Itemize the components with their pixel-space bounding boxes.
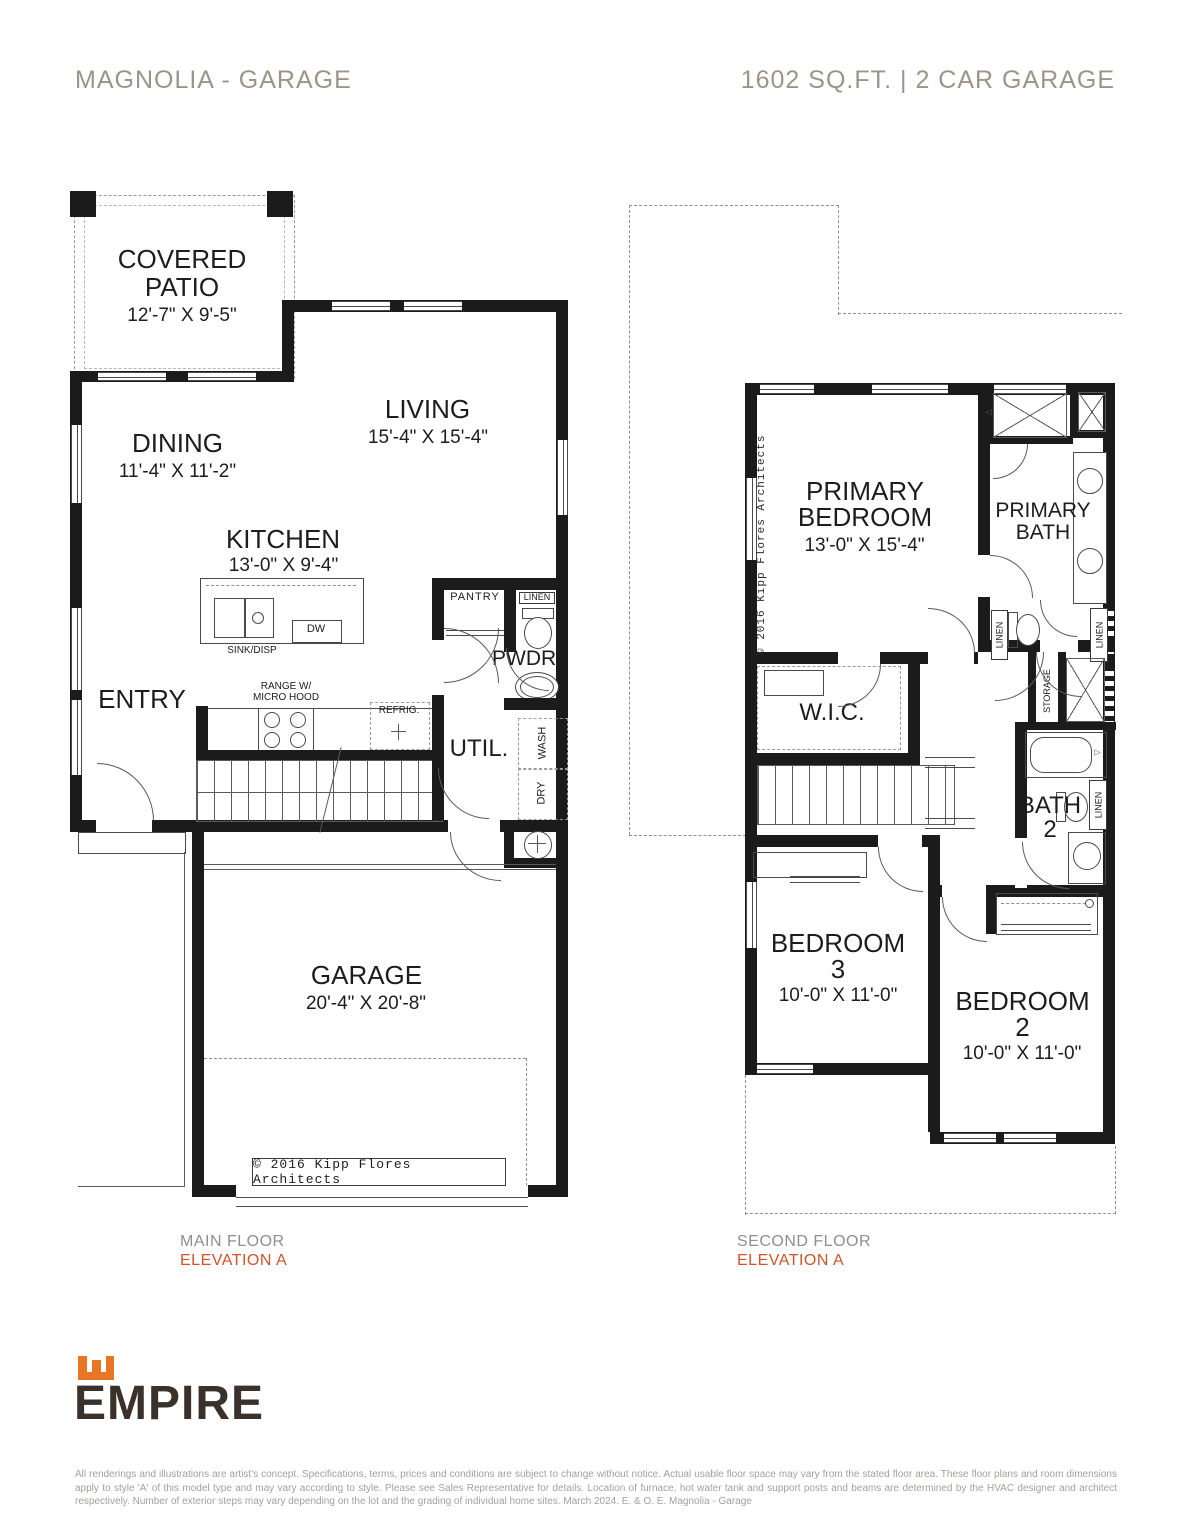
window xyxy=(557,440,568,515)
sink-icon xyxy=(1077,468,1103,494)
door-knob-icon xyxy=(1085,899,1094,908)
wall xyxy=(928,835,940,1132)
door-arc xyxy=(97,763,154,821)
room-label-primary-bedroom2: BEDROOM xyxy=(775,504,955,532)
room-label-dining: DINING xyxy=(110,430,245,458)
caption-main-floor: MAIN FLOOR xyxy=(180,1233,285,1251)
hatched-wall xyxy=(1104,666,1114,722)
window xyxy=(872,384,948,394)
floorplan-page: MAGNOLIA - GARAGE 1602 SQ.FT. | 2 CAR GA… xyxy=(0,0,1187,1536)
copyright-stamp: © 2016 Kipp Flores Architects xyxy=(252,1158,506,1186)
patio-post xyxy=(70,191,96,217)
wall xyxy=(432,578,568,590)
room-label-pantry: PANTRY xyxy=(446,592,504,604)
faucet-icon: ▽ xyxy=(1093,749,1102,755)
burner-icon xyxy=(264,732,280,748)
porch-step xyxy=(78,832,186,854)
water-heater-mark xyxy=(528,843,546,844)
stair-rail xyxy=(925,818,975,829)
room-label-kitchen: KITCHEN xyxy=(208,526,358,554)
door-opening xyxy=(96,820,152,832)
room-dims-kitchen: 13'-0" X 9'-4" xyxy=(206,556,361,576)
garage-slab-line xyxy=(204,864,556,865)
room-label-living: LIVING xyxy=(350,396,505,424)
window xyxy=(188,372,256,381)
room-dims-bedroom2: 10'-0" X 11'-0" xyxy=(941,1044,1103,1064)
closet-door xyxy=(790,876,860,883)
faucet-icon: ▽ xyxy=(985,409,994,415)
porch-line xyxy=(78,1186,185,1187)
patio-post xyxy=(267,191,293,217)
room-dims-primary-bedroom: 13'-0" X 15'-4" xyxy=(777,536,952,556)
caption-main-elevation: ELEVATION A xyxy=(180,1252,287,1270)
room-dims-covered-patio: 12'-7" X 9'-5" xyxy=(102,306,262,326)
toilet-icon xyxy=(524,617,552,649)
window xyxy=(404,301,462,311)
door-arc xyxy=(928,608,975,653)
door-opening xyxy=(432,640,444,695)
room-label-bedroom2-num: 2 xyxy=(945,1014,1100,1042)
plan-specs: 1602 SQ.FT. | 2 CAR GARAGE xyxy=(700,66,1115,95)
stair-rail xyxy=(925,757,975,768)
fridge-mark xyxy=(398,724,399,740)
wall xyxy=(282,300,294,382)
closet-label-linen: LINEN xyxy=(1089,780,1107,830)
water-heater-mark xyxy=(537,835,538,853)
stairs xyxy=(196,760,443,822)
door-arc xyxy=(1040,600,1077,637)
copyright-vertical: © 2016 Kipp Flores Architects xyxy=(756,435,768,655)
room-dims-dining: 11'-4" X 11'-2" xyxy=(95,462,260,482)
washer-label: WASH xyxy=(518,718,566,768)
roof-outline xyxy=(629,835,746,836)
wall xyxy=(504,858,568,868)
fridge-label: REFRIG. xyxy=(371,706,427,717)
door-arc xyxy=(993,444,1028,479)
wall xyxy=(996,1132,1004,1144)
water-heater-icon xyxy=(524,831,552,859)
door-arc xyxy=(990,555,1033,598)
closet-icon xyxy=(1078,392,1106,432)
brand-logo: EMPIRE xyxy=(74,1376,264,1431)
door-opening xyxy=(942,885,986,897)
roof-outline xyxy=(745,1213,1116,1214)
room-label-utility: UTIL. xyxy=(444,736,514,761)
roof-outline xyxy=(1115,1146,1116,1214)
garage-dashed-line xyxy=(204,1058,526,1059)
stairs xyxy=(757,765,955,825)
sink-label: SINK/DISP xyxy=(214,646,290,657)
closet-label-linen: LINEN xyxy=(1090,608,1108,662)
burner-icon xyxy=(290,732,306,748)
window xyxy=(71,425,82,503)
dishwasher-label: DW xyxy=(292,624,340,636)
burner-icon xyxy=(264,712,280,728)
room-dims-living: 15'-4" X 15'-4" xyxy=(338,428,518,448)
window xyxy=(760,384,814,394)
window xyxy=(757,1064,813,1074)
closet xyxy=(753,852,867,878)
roof-outline xyxy=(838,313,1122,314)
window xyxy=(98,372,166,381)
room-dims-garage: 20'-4" X 20'-8" xyxy=(286,994,446,1014)
shower-icon xyxy=(993,393,1067,438)
door-arc xyxy=(438,768,489,819)
range-label: RANGE W/ xyxy=(234,682,338,693)
fridge-mark xyxy=(391,731,406,732)
room-label-primary-bath: PRIMARY xyxy=(983,500,1103,522)
window xyxy=(746,882,757,948)
sink-icon xyxy=(1077,548,1103,574)
wall xyxy=(986,888,996,934)
room-label-bath2-num: 2 xyxy=(1012,817,1088,842)
stair-rail xyxy=(196,792,441,793)
door-arc xyxy=(942,897,987,942)
door-opening xyxy=(878,835,922,847)
toilet-icon xyxy=(1016,614,1040,646)
wall xyxy=(908,664,920,765)
door-arc xyxy=(450,832,501,881)
room-label-primary-bath2: BATH xyxy=(983,522,1103,544)
caption-second-elevation: ELEVATION A xyxy=(737,1252,844,1270)
sink-icon xyxy=(1073,842,1101,870)
door-opening xyxy=(448,820,500,832)
dryer-label: DRY xyxy=(518,768,566,818)
tub-icon xyxy=(1030,737,1092,773)
window xyxy=(71,700,82,775)
caption-second-floor: SECOND FLOOR xyxy=(737,1233,871,1251)
room-label-covered-patio: COVERED xyxy=(112,246,252,274)
roof-outline xyxy=(838,205,839,315)
garage-door xyxy=(236,1197,528,1207)
disclaimer-text: All renderings and illustrations are art… xyxy=(75,1468,1117,1509)
door-arc xyxy=(1022,842,1069,889)
room-label-covered-patio2: PATIO xyxy=(112,274,252,302)
room-label-bath2: BATH xyxy=(1012,793,1088,818)
wall xyxy=(196,750,440,760)
wall xyxy=(504,698,568,710)
window xyxy=(71,608,82,690)
sink-icon xyxy=(214,598,246,638)
burner-icon xyxy=(290,712,306,728)
roof-outline xyxy=(745,1075,746,1215)
closet-label-linen: LINEN xyxy=(519,592,555,604)
wall xyxy=(196,706,208,756)
room-label-entry: ENTRY xyxy=(96,686,188,714)
wic-shelf-box xyxy=(764,670,824,696)
door-opening xyxy=(838,652,880,664)
door-opening xyxy=(1040,640,1078,652)
roof-outline xyxy=(629,205,630,835)
page-title: MAGNOLIA - GARAGE xyxy=(75,66,352,95)
disposal-icon xyxy=(252,612,264,624)
wall xyxy=(504,590,516,652)
garage-slab-line xyxy=(204,869,556,870)
closet-shelf xyxy=(1001,903,1091,904)
room-label-garage: GARAGE xyxy=(299,962,434,990)
range-label2: MICRO HOOD xyxy=(234,693,338,704)
wall xyxy=(745,753,920,765)
door-arc xyxy=(878,847,923,892)
porch-line xyxy=(184,852,185,1186)
room-label-wic: W.I.C. xyxy=(787,700,877,725)
closet-door xyxy=(1001,924,1091,931)
room-dims-bedroom3: 10'-0" X 11'-0" xyxy=(760,986,916,1006)
door-opening xyxy=(928,652,974,664)
counter-edge xyxy=(206,585,356,586)
garage-dashed-line xyxy=(526,1058,527,1186)
door-arc xyxy=(506,648,549,691)
roof-outline xyxy=(629,205,839,206)
wall xyxy=(192,820,204,1197)
room-label-bedroom3-num: 3 xyxy=(763,956,913,984)
window xyxy=(332,301,390,311)
